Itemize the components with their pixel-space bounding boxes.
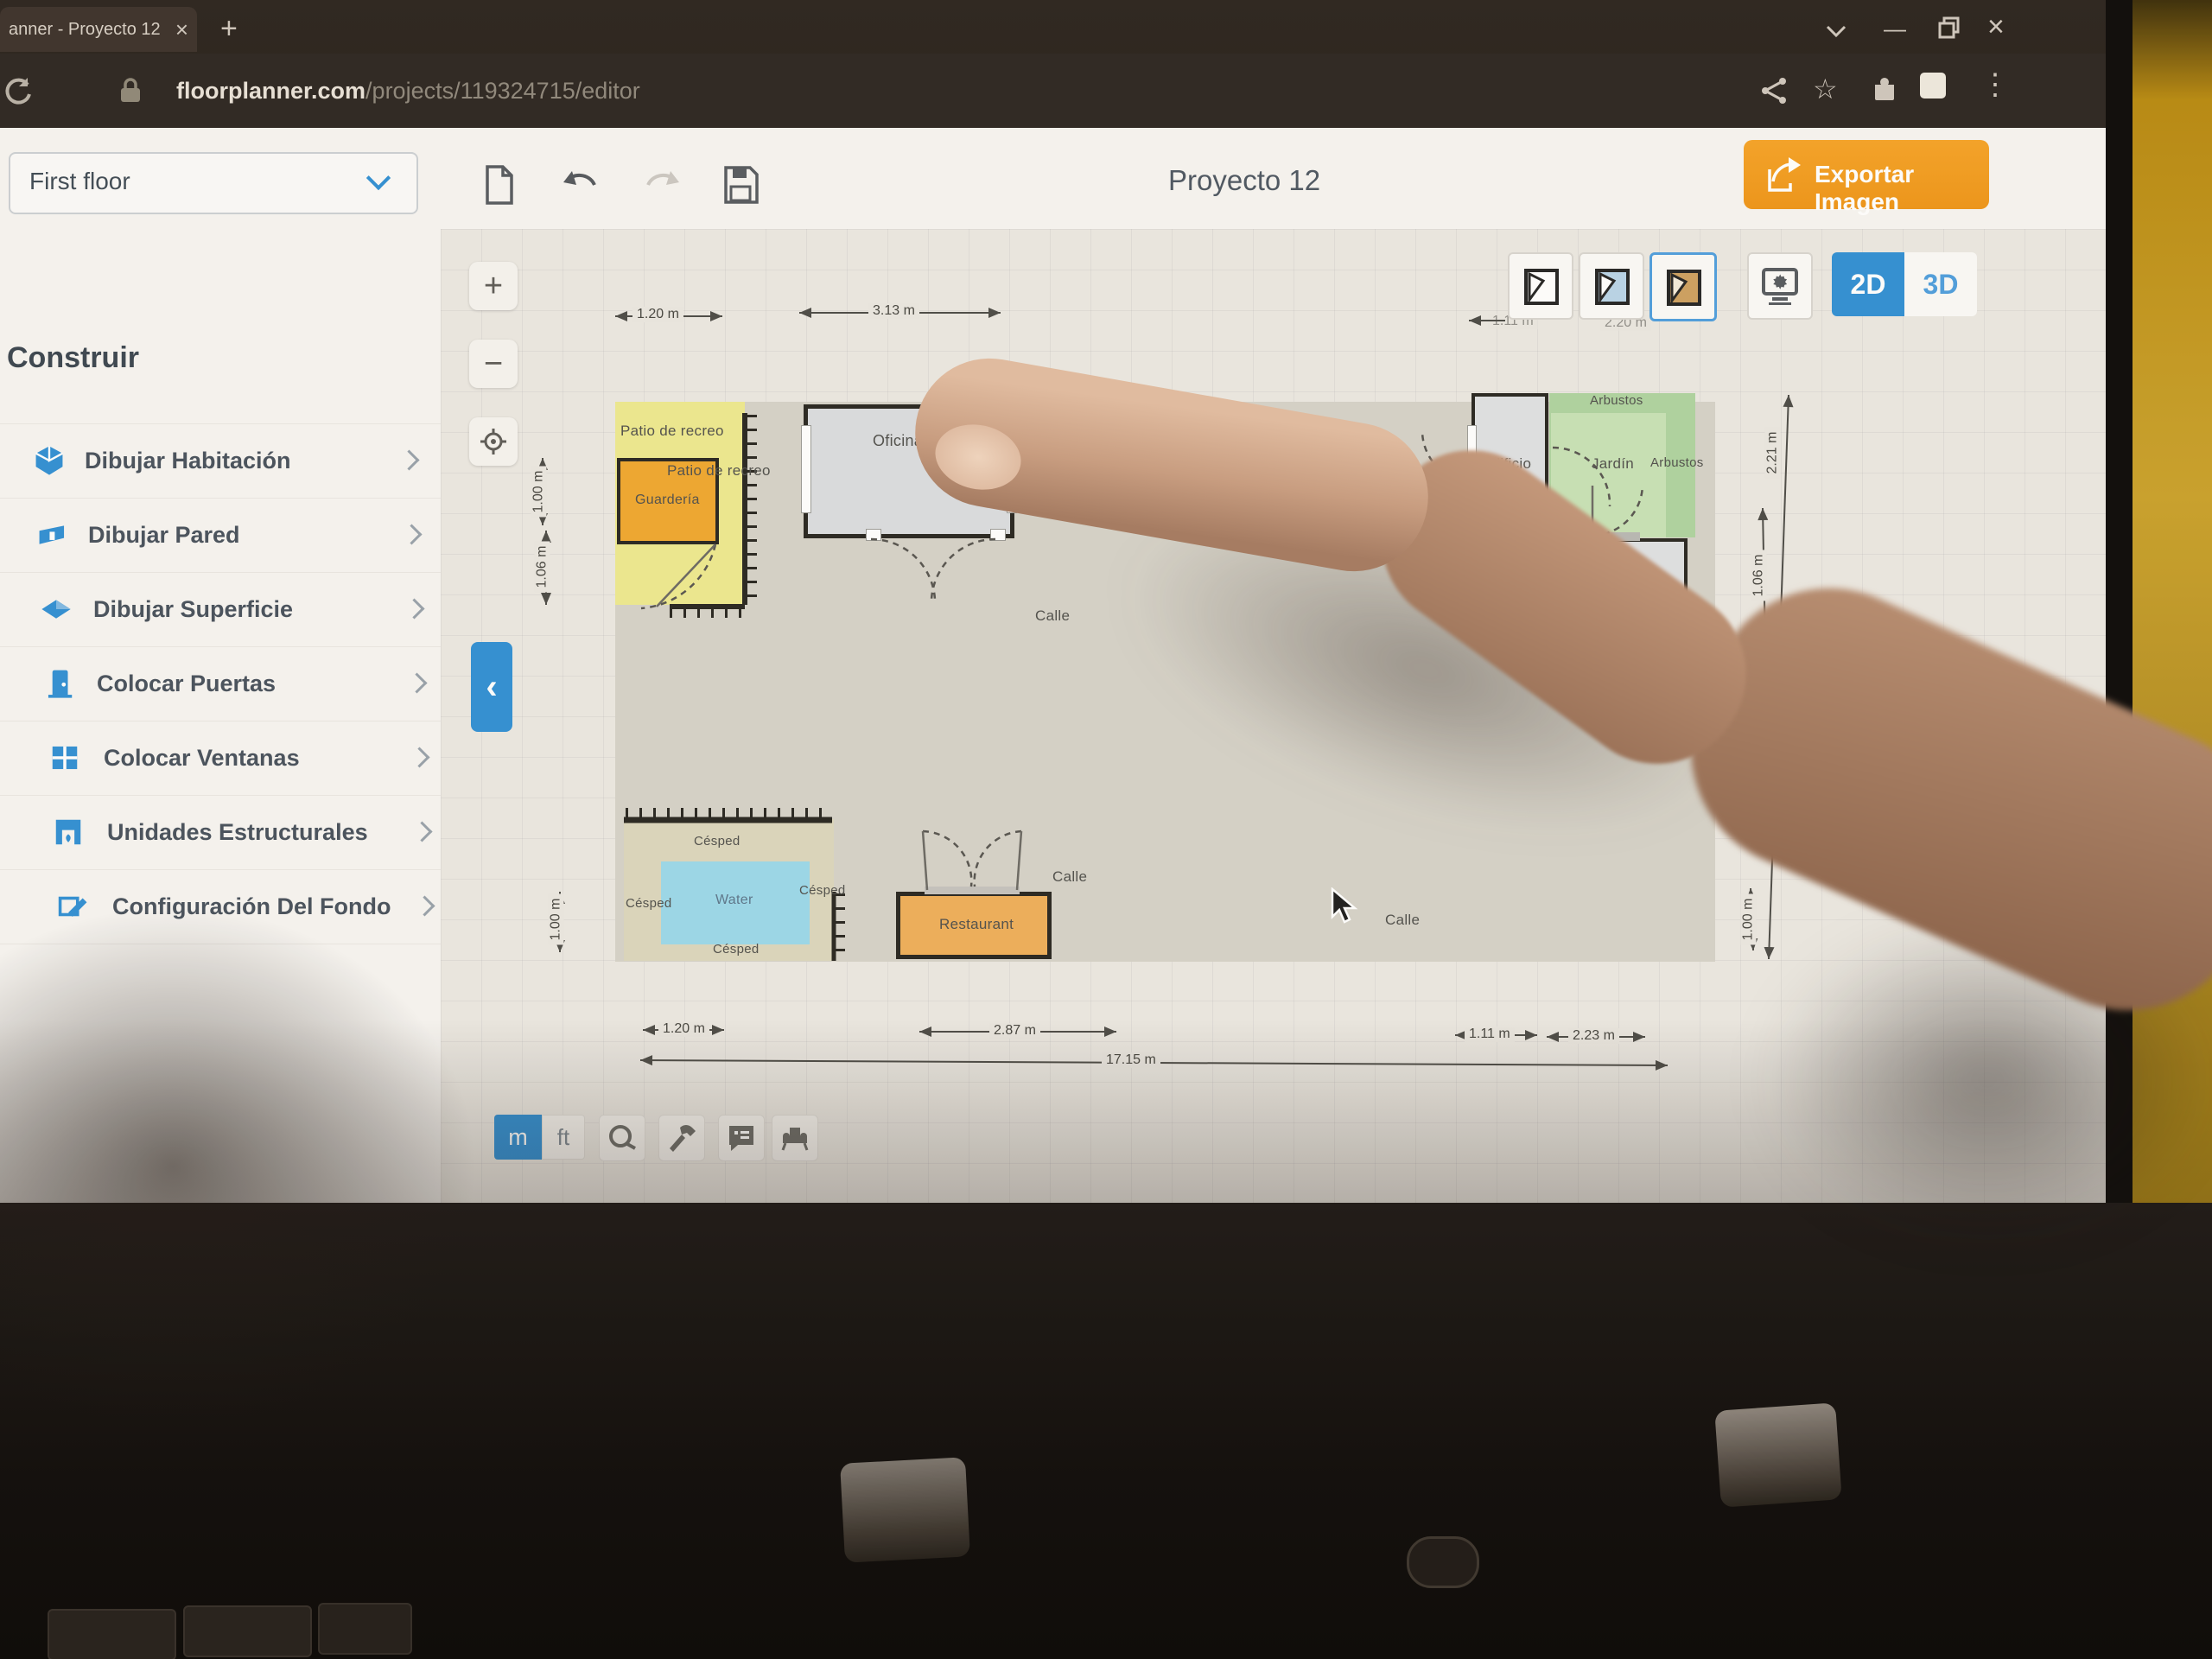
dim-left-upper: 1.00 m [531,467,546,518]
center-view-button[interactable] [469,417,518,466]
extensions-puzzle-icon[interactable] [1870,74,1899,104]
tape-measure-icon [607,1122,638,1154]
room-cube-icon [33,444,66,477]
monitor-gear-icon [1758,264,1802,308]
sidebar-item-colocar-ventanas[interactable]: Colocar Ventanas [0,722,441,795]
label-garaje: Garaje [1484,566,1530,583]
crosshair-icon [479,427,508,456]
unit-m-button[interactable]: m [494,1115,542,1160]
label-calle-right: Calle [1385,912,1420,929]
label-edificio1: Edificio [1482,455,1531,473]
browser-chrome: anner - Proyecto 12 × + — × floorplanner… [0,0,2106,128]
build-tool-button[interactable] [658,1115,705,1161]
label-jardin: Jardín [1592,455,1634,473]
keyboard-key [183,1605,312,1657]
edificio2-door-bar [1586,608,1647,617]
export-image-button[interactable]: Exportar Imagen [1744,140,1989,209]
door-icon [43,667,76,700]
new-document-icon[interactable] [482,164,517,206]
hammer-icon [666,1122,697,1154]
profile-avatar-box[interactable] [1920,73,1946,99]
oficina-room[interactable] [804,404,1014,538]
minimize-button[interactable]: — [1884,17,1906,40]
restaurant-door-bar [925,887,1020,894]
floorplanner-editor: First floor Proyecto 12 Exportar Imagen … [0,128,2106,1203]
url-domain: floorplanner.com [176,78,365,105]
zoom-out-button[interactable]: − [469,340,518,388]
project-title: Proyecto 12 [1168,164,1320,197]
dim-right-bottom: 1.00 m [1740,894,1756,945]
label-patio2: Patio de recreo [667,462,771,480]
fireplace-icon [52,816,85,849]
tab-search-chevron-icon[interactable] [1825,22,1847,40]
sidebar-item-dibujar-habitacion[interactable]: Dibujar Habitación [0,425,441,498]
comment-bubble-icon [726,1122,757,1154]
floor-selector[interactable]: First floor [9,152,418,214]
save-icon[interactable] [722,164,759,204]
jardin-door-bar [1590,532,1640,541]
wall-style-textured-button[interactable] [1649,252,1717,321]
dim-bottom-3: 1.11 m [1465,1027,1515,1042]
chrome-menu-kebab-icon[interactable]: ⋮ [1980,67,2010,102]
unit-ft-button[interactable]: ft [542,1115,585,1160]
build-sidebar: Construir Dibujar Habitación Dibujar Par… [0,229,442,1203]
url-path: /projects/119324715/editor [365,78,640,105]
wall-style-filled-icon [1592,265,1631,307]
wall-icon [36,518,69,551]
export-label: Exportar Imagen [1815,161,1989,216]
dim-bottom-4: 2.23 m [1568,1028,1619,1044]
address-bar[interactable]: floorplanner.com /projects/119324715/edi… [0,54,2106,128]
label-patio: Patio de recreo [620,423,724,440]
label-guarderia: Guardería [635,493,700,508]
wall-style-textured-icon [1663,266,1703,308]
share-icon[interactable] [1759,76,1789,105]
laptop-base [0,1203,2212,1659]
window-icon [48,741,81,774]
chevron-down-icon [366,166,391,190]
oficina-window-left [801,425,811,513]
label-edificio2: Edificio [1590,566,1639,583]
oficina-door-sill-right [990,529,1006,541]
tab-title: anner - Proyecto 12 [9,20,168,40]
reload-icon[interactable] [2,74,35,107]
display-settings-button[interactable] [1747,252,1813,320]
dim-left-lower: 1.06 m [534,542,550,593]
laptop-hinge-left [840,1457,970,1562]
dim-top-office: 3.13 m [868,303,919,319]
sidebar-item-unidades-estructurales[interactable]: Unidades Estructurales [0,797,441,869]
dim-bottom-total: 17.15 m [1102,1052,1160,1068]
new-tab-button[interactable]: + [220,14,238,43]
browser-tab[interactable]: anner - Proyecto 12 × [0,7,197,52]
label-water: Water [715,893,753,908]
label-cesped-right: Césped [799,883,846,898]
label-arbustos-top: Arbustos [1590,393,1643,408]
editor-topbar: First floor Proyecto 12 Exportar Imagen [0,128,2106,231]
dim-right-tall: 2.21 m [1764,428,1780,479]
restore-window-icon[interactable] [1937,16,1961,40]
oficina-door-sill-left [866,529,881,541]
label-cesped-bottom: Césped [713,942,760,957]
dim-top-small: 1.20 m [632,307,683,322]
sidebar-item-colocar-puertas[interactable]: Colocar Puertas [0,648,441,721]
keyboard-key [318,1603,412,1655]
keyboard-key [48,1609,176,1659]
site-info-icon[interactable] [118,76,143,105]
comments-button[interactable] [718,1115,765,1161]
label-calle-center: Calle [1035,607,1070,625]
floorplan-canvas[interactable]: + − ‹ 2D 3D [441,229,2106,1203]
tab-close-icon[interactable]: × [175,18,188,41]
label-arbustos-right: Arbustos [1650,455,1704,470]
zoom-in-button[interactable]: + [469,262,518,310]
surface-icon [40,593,73,626]
wall-style-outline-button[interactable] [1508,252,1573,320]
measure-tool-button[interactable] [599,1115,645,1161]
sidebar-heading: Construir [7,341,139,375]
redo-icon[interactable] [641,169,683,204]
export-icon [1764,156,1804,194]
sidebar-item-dibujar-pared[interactable]: Dibujar Pared [0,499,441,572]
collapse-sidebar-tab[interactable]: ‹ [471,642,512,732]
armchair-icon [779,1122,810,1154]
dim-bottom-2: 2.87 m [989,1023,1040,1039]
bookmark-star-icon[interactable]: ☆ [1813,73,1838,105]
photo-of-laptop-screen: anner - Proyecto 12 × + — × floorplanner… [0,0,2212,1659]
label-oficina: Oficina [873,432,923,450]
laptop-hinge-right [1714,1402,1841,1507]
label-cesped-left: Césped [626,896,672,911]
wall-style-outline-icon [1521,265,1560,307]
oficina-window-right [1007,425,1017,513]
view-3d-button[interactable]: 3D [1904,252,1977,316]
close-window-button[interactable]: × [1987,12,2005,41]
power-button [1407,1536,1479,1588]
view-2d-button[interactable]: 2D [1832,252,1904,316]
dim-left-bottom: 1.00 m [548,894,563,945]
mouse-cursor [1329,887,1360,925]
furniture-button[interactable] [772,1115,818,1161]
dim-right-mid: 1.06 m [1751,550,1766,601]
edificio1-window-left [1467,425,1477,509]
wall-style-filled-button[interactable] [1579,252,1644,320]
label-cesped-top: Césped [694,834,741,849]
label-calle-restaurant: Calle [1052,868,1087,886]
background-pencil-icon [57,890,90,923]
sidebar-item-dibujar-superficie[interactable]: Dibujar Superficie [0,574,441,646]
undo-icon[interactable] [560,169,601,204]
sidebar-item-configuracion-del-fondo[interactable]: Configuración Del Fondo [0,871,441,944]
jardin-surface[interactable] [1551,413,1666,537]
label-restaurant: Restaurant [939,916,1014,933]
floor-selector-label: First floor [29,168,130,195]
dim-bottom-1: 1.20 m [658,1021,709,1037]
